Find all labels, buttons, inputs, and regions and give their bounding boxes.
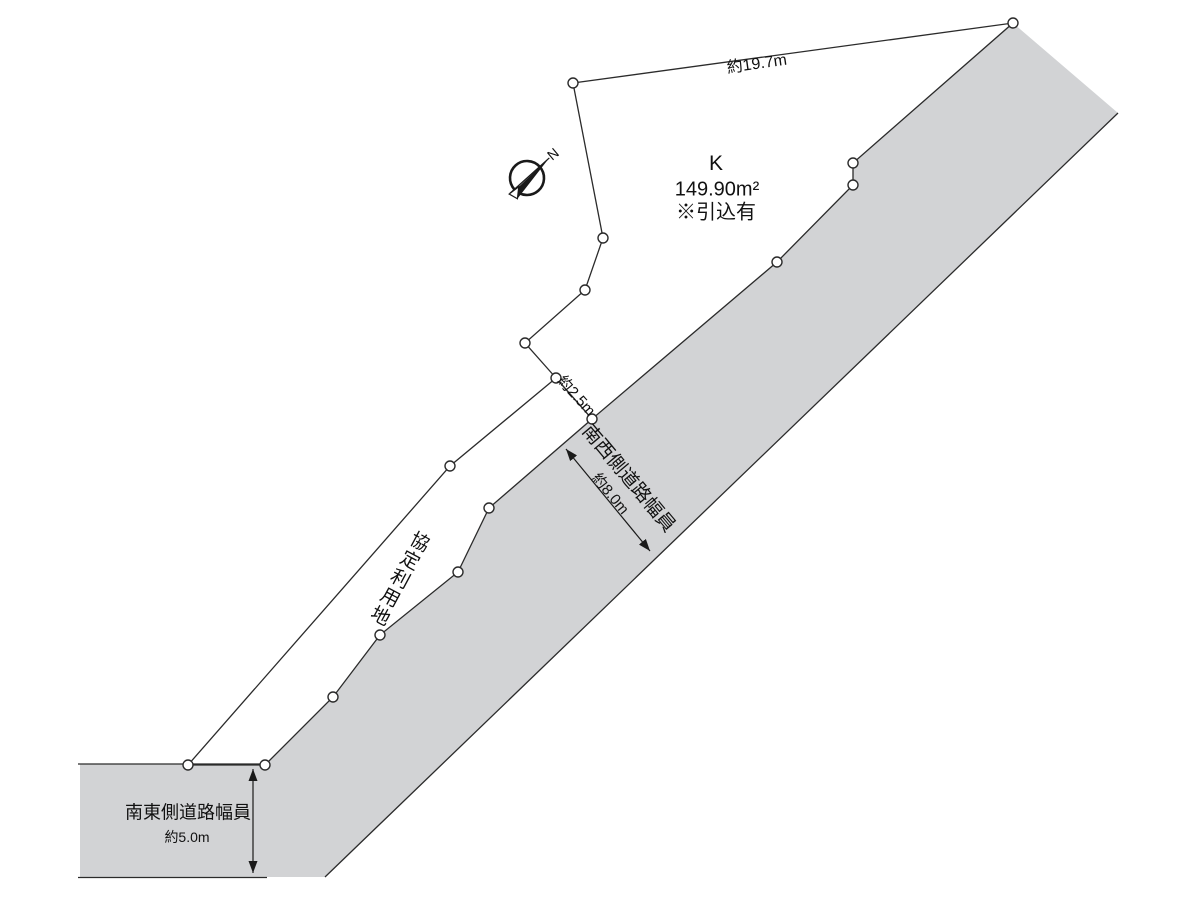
vertex-marker (598, 233, 608, 243)
vertex-marker (568, 78, 578, 88)
vertex-marker (848, 158, 858, 168)
southeast-road-width-label: 約5.0m (164, 829, 209, 845)
vertex-marker (183, 760, 193, 770)
southeast-road-label: 南東側道路幅員 (125, 803, 251, 824)
plot-note-label: ※引込有 (676, 202, 756, 225)
road-right-border (325, 113, 1118, 877)
vertex-marker (772, 257, 782, 267)
vertex-marker (1008, 18, 1018, 28)
vertex-marker (445, 461, 455, 471)
vertex-marker (453, 567, 463, 577)
vertex-marker (328, 692, 338, 702)
vertex-marker (260, 760, 270, 770)
vertex-marker (580, 285, 590, 295)
vertex-marker (375, 630, 385, 640)
site-plan-canvas: 約19.7m N K 149.90m² ※引込有 約2.5m 南西側道路幅員 約… (0, 0, 1200, 900)
vertex-marker (848, 180, 858, 190)
vertex-marker (520, 338, 530, 348)
plot-area-label: 149.90m² (675, 179, 760, 202)
plot-name-label: K (709, 152, 723, 176)
vertex-marker (484, 503, 494, 513)
